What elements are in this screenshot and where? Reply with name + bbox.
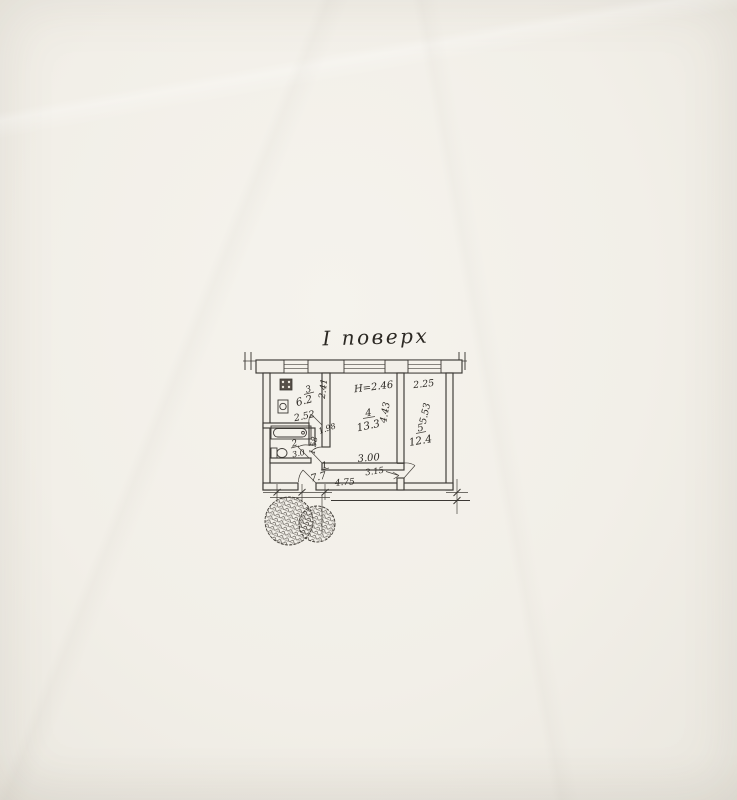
window-symbol xyxy=(284,360,308,373)
tree-symbol xyxy=(299,506,335,542)
dim-nook-depth: 1.58 xyxy=(308,436,320,455)
dim-kitchen-width: 2.52 xyxy=(292,409,316,424)
ceiling-height-note: Н=2.46 xyxy=(352,380,394,396)
room-4-area: 13.3 xyxy=(356,418,382,435)
dim-room5-depth: 5.53 xyxy=(418,402,433,425)
room-3-area: 6.2 xyxy=(295,393,315,409)
dim-room4-width: 3.00 xyxy=(357,452,381,465)
scanned-page: І поверх 3 6.2 2.52 2.41 1.98 1.58 2 3.0… xyxy=(0,0,737,800)
window-symbol xyxy=(408,360,441,373)
dim-hall-width: 4.75 xyxy=(334,477,356,488)
sink-icon xyxy=(278,400,288,413)
room-5-area: 12.4 xyxy=(408,433,433,449)
floor-plan-drawing: І поверх 3 6.2 2.52 2.41 1.98 1.58 2 3.0… xyxy=(0,0,737,800)
dim-room4-width-outer: 3.15 xyxy=(365,466,385,479)
dim-room5-width: 2.25 xyxy=(412,378,435,391)
stove-icon xyxy=(280,379,292,390)
toilet-icon xyxy=(271,448,287,458)
dim-room4-depth: 4.43 xyxy=(378,401,393,425)
window-symbol xyxy=(344,360,385,373)
page-title: І поверх xyxy=(321,324,429,351)
